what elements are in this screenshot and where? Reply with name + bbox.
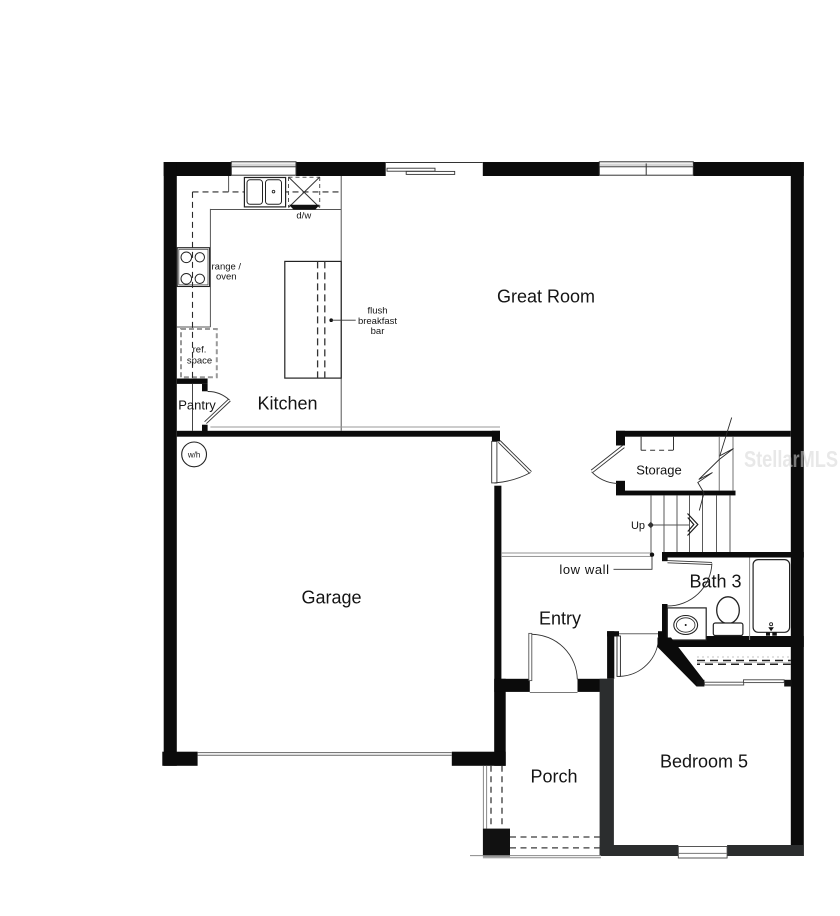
svg-text:low wall: low wall (559, 562, 609, 577)
svg-text:w/h: w/h (187, 450, 200, 459)
svg-text:Great Room: Great Room (497, 287, 595, 307)
svg-text:d/w: d/w (296, 211, 311, 222)
svg-text:Porch: Porch (530, 767, 577, 787)
svg-text:oven: oven (216, 272, 237, 283)
svg-text:Entry: Entry (539, 609, 581, 629)
svg-text:space: space (187, 356, 212, 367)
svg-text:ref.: ref. (193, 345, 207, 356)
svg-text:Garage: Garage (301, 588, 361, 608)
svg-text:bar: bar (371, 326, 385, 337)
svg-text:Kitchen: Kitchen (257, 394, 317, 414)
svg-text:Pantry: Pantry (178, 398, 216, 413)
svg-text:Bath 3: Bath 3 (689, 572, 741, 592)
svg-text:Up: Up (631, 520, 645, 532)
svg-text:StellarMLS: StellarMLS (744, 446, 838, 472)
svg-text:Storage: Storage (636, 463, 682, 478)
svg-text:Bedroom 5: Bedroom 5 (660, 751, 748, 771)
